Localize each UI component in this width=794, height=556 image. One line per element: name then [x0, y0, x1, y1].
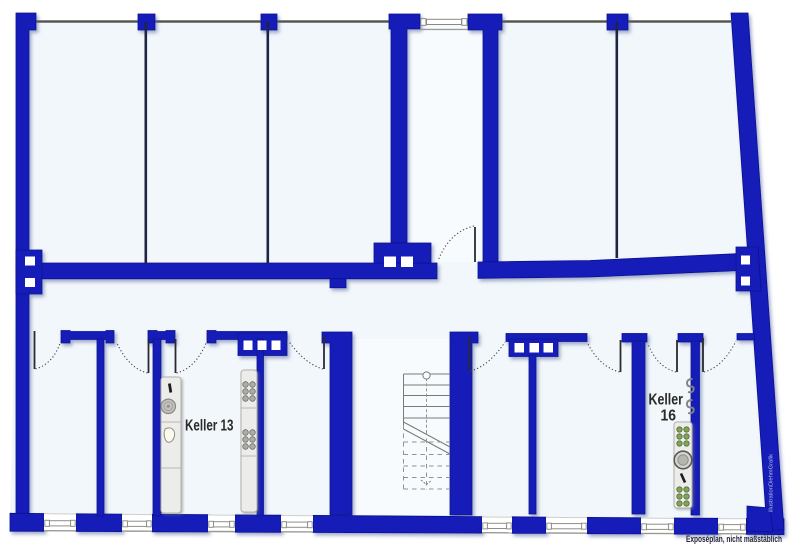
svg-text:Keller 13: Keller 13	[185, 418, 234, 435]
svg-text:illustrationDiehmGrafik: illustrationDiehmGrafik	[769, 454, 775, 512]
svg-text:Exposéplan, nicht maßstäblich: Exposéplan, nicht maßstäblich	[686, 534, 782, 544]
svg-text:Keller: Keller	[649, 392, 684, 409]
svg-text:16: 16	[661, 408, 677, 425]
